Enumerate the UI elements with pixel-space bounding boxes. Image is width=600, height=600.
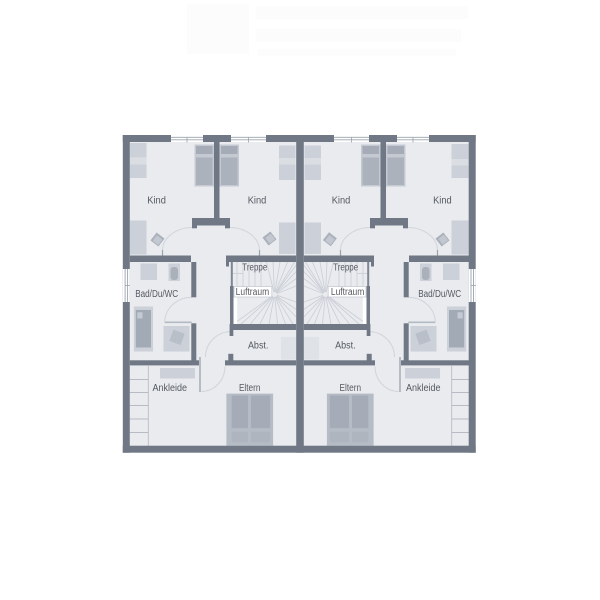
svg-text:Eltern: Eltern [239, 383, 261, 394]
svg-text:Bad/Du/WC: Bad/Du/WC [135, 289, 178, 300]
svg-text:Eltern: Eltern [340, 383, 362, 394]
svg-text:Ankleide: Ankleide [406, 383, 441, 394]
svg-text:Kind: Kind [248, 195, 267, 207]
svg-text:Bad/Du/WC: Bad/Du/WC [418, 289, 461, 300]
svg-text:Luftraum: Luftraum [236, 287, 270, 298]
svg-text:Abst.: Abst. [248, 341, 269, 352]
svg-text:Kind: Kind [332, 195, 351, 207]
svg-text:Kind: Kind [433, 195, 452, 207]
svg-text:Ankleide: Ankleide [153, 383, 188, 394]
svg-text:Kind: Kind [147, 195, 166, 207]
svg-text:Abst.: Abst. [335, 341, 356, 352]
svg-text:Treppe: Treppe [242, 262, 267, 273]
svg-text:Luftraum: Luftraum [331, 287, 365, 298]
svg-text:Treppe: Treppe [333, 262, 358, 273]
